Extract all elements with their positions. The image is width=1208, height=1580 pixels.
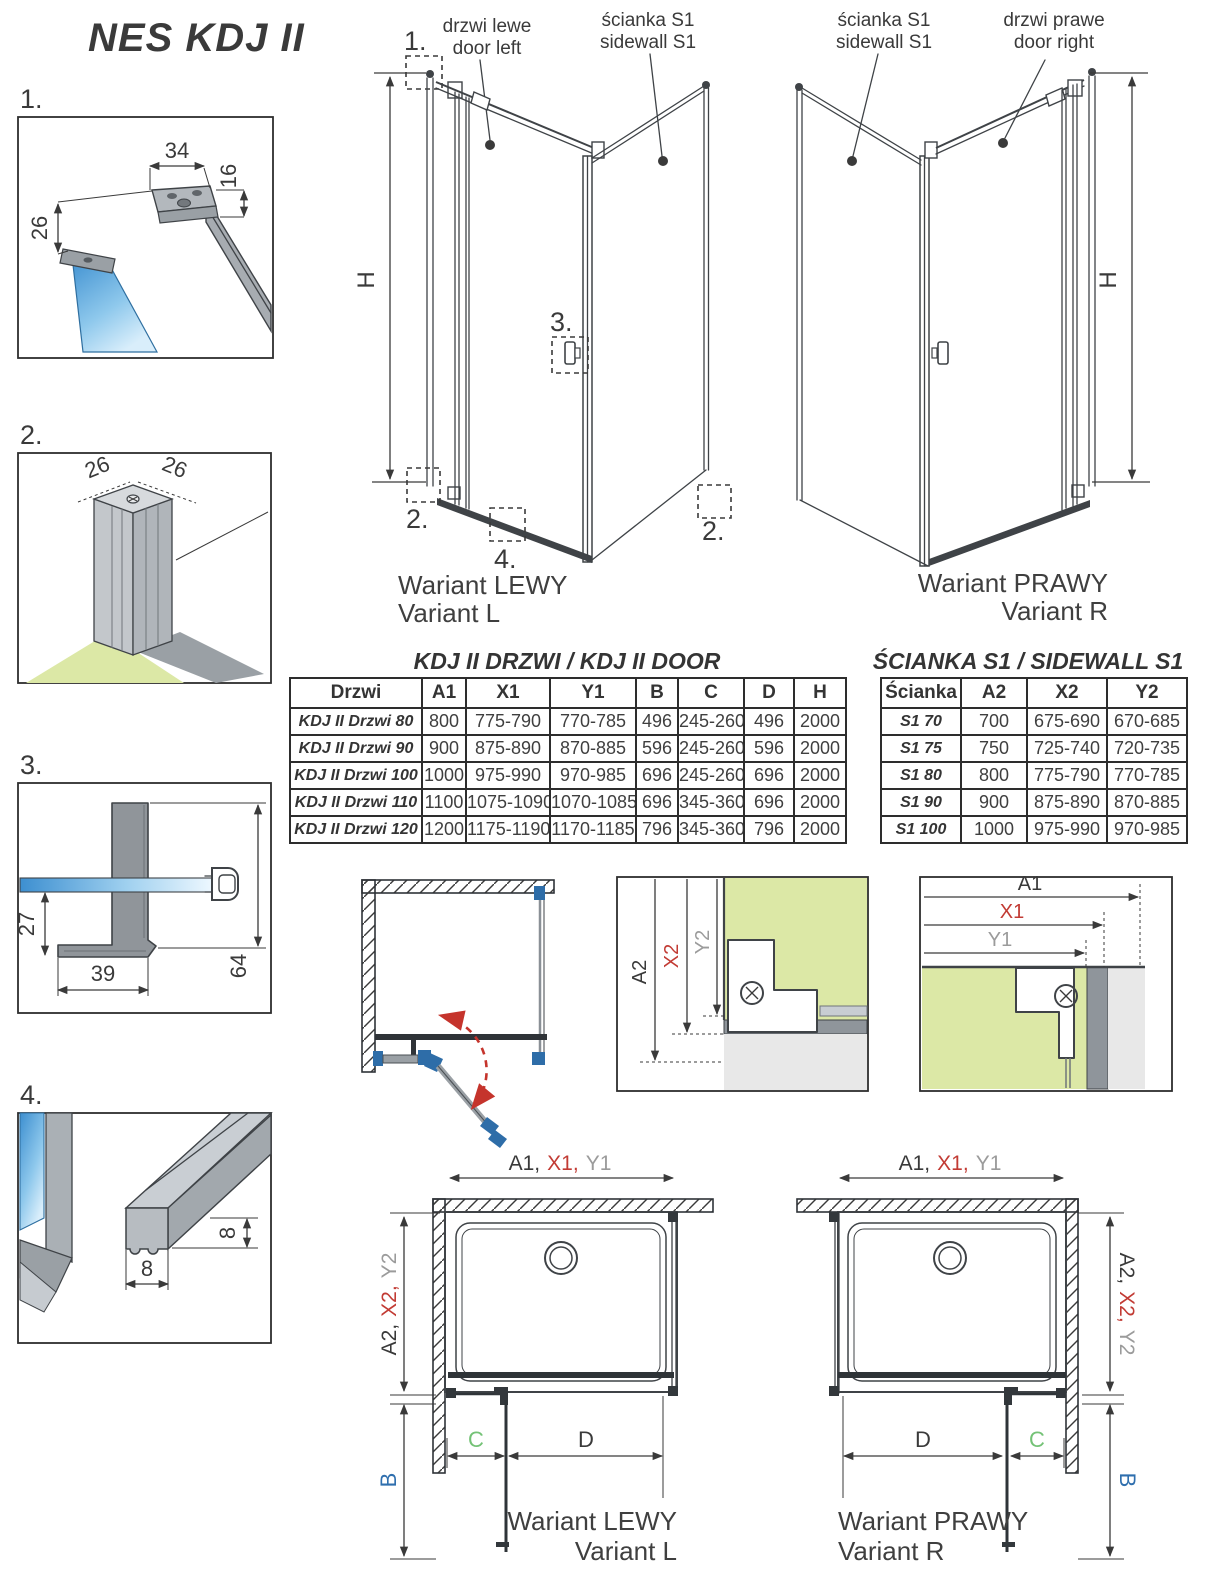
- leader-dot: [998, 138, 1008, 148]
- leader-dot: [847, 156, 857, 166]
- dim-c: C: [468, 1427, 484, 1452]
- dim-8-height: 8: [215, 1227, 240, 1239]
- marker-2-box: [698, 485, 731, 518]
- table-row: S1 75750725-740720-735: [881, 735, 1187, 762]
- cell: 696: [744, 789, 794, 816]
- sidewall-label-en: sidewall S1: [836, 32, 932, 53]
- shower-tray: [838, 1212, 1066, 1392]
- leader-dot: [658, 156, 668, 166]
- cell: 1000: [422, 762, 466, 789]
- hinge-block: [1072, 485, 1084, 497]
- table-row: KDJ II Drzwi 90900875-890870-885596245-2…: [290, 735, 846, 762]
- door-handle: [938, 342, 948, 364]
- cell: 2000: [794, 735, 846, 762]
- door-left-label-pl: drzwi lewe: [443, 16, 532, 37]
- door-rail: [448, 1372, 674, 1378]
- glass-connector: [532, 1052, 545, 1065]
- cell: KDJ II Drzwi 110: [290, 789, 422, 816]
- dim-b: B: [1115, 1473, 1140, 1488]
- detail-4-threshold-profile: 4. 8 8: [18, 1080, 271, 1343]
- cell: 770-785: [1107, 762, 1187, 789]
- dim-d: D: [578, 1427, 594, 1452]
- marker-3: 3.: [550, 307, 573, 337]
- mount-detail-sidewall: A2 X2 Y2: [617, 877, 868, 1091]
- corner-connector: [925, 142, 937, 158]
- sidewall-table-title: ŚCIANKA S1 / SIDEWALL S1: [866, 648, 1190, 675]
- dim-x2: X2: [661, 944, 683, 968]
- sidewall-table: Ścianka A2 X2 Y2 S1 70700675-690670-685 …: [880, 677, 1188, 844]
- cell: 775-790: [466, 708, 550, 735]
- table-header-row: Drzwi A1 X1 Y1 B C D H: [290, 678, 846, 708]
- profile-left-face: [94, 499, 133, 655]
- col-header-x2: X2: [1027, 678, 1107, 708]
- cell: S1 75: [881, 735, 961, 762]
- height-label: H: [353, 271, 380, 288]
- hinge-wall-block: [1056, 1388, 1066, 1398]
- plan-side-dims: A2,X2,Y2: [1115, 1253, 1138, 1356]
- sidewall-label-pl: ścianka S1: [602, 10, 695, 31]
- cell: 496: [744, 708, 794, 735]
- cell: 970-985: [1107, 816, 1187, 843]
- cell: 1000: [961, 816, 1027, 843]
- cell: 245-260: [678, 708, 744, 735]
- dim-a2: A2: [629, 960, 651, 984]
- col-header-c: C: [678, 678, 744, 708]
- dim-c: C: [1029, 1427, 1045, 1452]
- dim-16: 16: [216, 164, 241, 188]
- cell: 770-785: [550, 708, 636, 735]
- col-header-b: B: [636, 678, 678, 708]
- wall-left: [362, 880, 375, 1072]
- cell: KDJ II Drzwi 90: [290, 735, 422, 762]
- variant-left-drawing: drzwi lewe door left ścianka S1 sidewall…: [353, 10, 731, 628]
- door-rail-section: [820, 1006, 867, 1016]
- door-foot: [496, 1542, 509, 1547]
- cell: 696: [636, 762, 678, 789]
- glass-panel: [20, 1113, 44, 1230]
- cell: 975-990: [1027, 816, 1107, 843]
- sidewall-label-en: sidewall S1: [600, 32, 696, 53]
- cell: 900: [422, 735, 466, 762]
- marker-2: 2.: [406, 504, 429, 534]
- cell: 2000: [794, 762, 846, 789]
- threshold-bar: [929, 500, 1090, 566]
- door-rail: [375, 1034, 547, 1040]
- detail-1-frame: [18, 117, 273, 358]
- table-row: KDJ II Drzwi 80800775-790770-785496245-2…: [290, 708, 846, 735]
- dim-y1: Y1: [988, 929, 1012, 951]
- cell: 800: [422, 708, 466, 735]
- cell: 900: [961, 789, 1027, 816]
- screw-icon: [178, 199, 191, 207]
- profile-strip: [1087, 967, 1108, 1089]
- variant-right-caption-en: Variant R: [1002, 596, 1108, 626]
- dim-34: 34: [165, 138, 189, 163]
- plan-left-caption-en: Variant L: [575, 1536, 677, 1566]
- col-header-y1: Y1: [550, 678, 636, 708]
- dim-26: 26: [27, 216, 52, 240]
- shower-tray: [445, 1212, 677, 1392]
- cell: S1 80: [881, 762, 961, 789]
- wall-left: [433, 1199, 445, 1473]
- cell: KDJ II Drzwi 100: [290, 762, 422, 789]
- cell: 2000: [794, 816, 846, 843]
- cell: 750: [961, 735, 1027, 762]
- glass-connector: [534, 886, 545, 900]
- corner-connector: [592, 142, 604, 158]
- plan-top-dims: A1,X1,Y1: [509, 1152, 612, 1175]
- door-right-label-pl: drzwi prawe: [1003, 10, 1104, 31]
- swing-arc-arrow: [443, 1016, 487, 1106]
- hinge-block: [1068, 80, 1082, 96]
- detail-2-number: 2.: [20, 420, 43, 450]
- cell: 875-890: [1027, 789, 1107, 816]
- seal-profile: [46, 1113, 72, 1262]
- screw-icon: [192, 190, 202, 196]
- dim-b: B: [376, 1473, 401, 1488]
- detail-3-wall-bracket-section: 3. 27 39 64: [14, 750, 271, 1013]
- dim-x1: X1: [1000, 901, 1024, 923]
- cell: 2000: [794, 708, 846, 735]
- cell: 796: [636, 816, 678, 843]
- detail-3-number: 3.: [20, 750, 43, 780]
- cell: 675-690: [1027, 708, 1107, 735]
- table-row: S1 90900875-890870-885: [881, 789, 1187, 816]
- table-row: KDJ II Drzwi 12012001175-11901170-118579…: [290, 816, 846, 843]
- col-header-x1: X1: [466, 678, 550, 708]
- table-row: S1 70700675-690670-685: [881, 708, 1187, 735]
- dim-27: 27: [14, 912, 39, 936]
- cell: 975-990: [466, 762, 550, 789]
- plan-right-caption-en: Variant R: [838, 1536, 944, 1566]
- wall-top: [797, 1199, 1078, 1212]
- dim-d: D: [915, 1427, 931, 1452]
- col-header-d: D: [744, 678, 794, 708]
- door-foot: [1002, 1542, 1015, 1547]
- variant-left-caption-pl: Wariant LEWY: [398, 570, 568, 600]
- plan-view-right: A1,X1,Y1 A2,X2,Y2 B D C Wariant PRAWY Va…: [797, 1152, 1140, 1566]
- door-rail: [838, 1372, 1066, 1378]
- sidewall-label-pl: ścianka S1: [838, 10, 931, 31]
- marker-2-box: [407, 468, 440, 502]
- detail-1-top-bracket: 1. 34 16 26: [18, 84, 273, 358]
- door-table-title: KDJ II DRZWI / KDJ II DOOR: [289, 648, 845, 675]
- door-swing-schematic: [362, 880, 554, 1148]
- cell: 970-985: [550, 762, 636, 789]
- glass-connector: [668, 1386, 678, 1396]
- glass-connector: [829, 1386, 839, 1396]
- cell: 720-735: [1107, 735, 1187, 762]
- col-header-h: H: [794, 678, 846, 708]
- table-header-row: Ścianka A2 X2 Y2: [881, 678, 1187, 708]
- detail-2-corner-profile: 2. 26 26: [18, 420, 271, 683]
- cell: 1075-1090: [466, 789, 550, 816]
- screw-icon: [84, 257, 93, 262]
- cell: 2000: [794, 789, 846, 816]
- variant-right-caption-pl: Wariant PRAWY: [918, 568, 1108, 598]
- plan-side-dims: A2,X2,Y2: [378, 1253, 401, 1356]
- hinge-block: [448, 487, 460, 499]
- col-header-scianka: Ścianka: [881, 678, 961, 708]
- cell: 1175-1190: [466, 816, 550, 843]
- table-row: KDJ II Drzwi 11011001075-10901070-108569…: [290, 789, 846, 816]
- hinge-arm: [383, 1055, 418, 1063]
- profile-right-face: [133, 499, 172, 655]
- plan-right-caption-pl: Wariant PRAWY: [838, 1506, 1028, 1536]
- floor-strip: [724, 1034, 867, 1090]
- cell: 696: [636, 789, 678, 816]
- cell: 245-260: [678, 762, 744, 789]
- glass-connector: [829, 1212, 839, 1222]
- plan-top-dims: A1,X1,Y1: [899, 1152, 1002, 1175]
- table-row: KDJ II Drzwi 1001000975-990970-985696245…: [290, 762, 846, 789]
- cell: 1070-1085: [550, 789, 636, 816]
- cell: 870-885: [550, 735, 636, 762]
- cell: 345-360: [678, 789, 744, 816]
- cell: KDJ II Drzwi 120: [290, 816, 422, 843]
- plan-left-caption-pl: Wariant LEWY: [507, 1506, 677, 1536]
- wall-right: [1066, 1199, 1078, 1473]
- cell: S1 70: [881, 708, 961, 735]
- cell: 875-890: [466, 735, 550, 762]
- height-label: H: [1095, 271, 1122, 288]
- detail-1-number: 1.: [20, 84, 43, 114]
- dim-64: 64: [226, 954, 251, 978]
- cell: 1200: [422, 816, 466, 843]
- detail-4-number: 4.: [20, 1080, 43, 1110]
- cell: 496: [636, 708, 678, 735]
- marker-1: 1.: [404, 26, 427, 56]
- cell: 345-360: [678, 816, 744, 843]
- table-row: S1 80800775-790770-785: [881, 762, 1187, 789]
- table-row: S1 1001000975-990970-985: [881, 816, 1187, 843]
- handle-knob: [212, 868, 238, 900]
- cell: 670-685: [1107, 708, 1187, 735]
- door-left-label-en: door left: [453, 38, 522, 59]
- cell: S1 100: [881, 816, 961, 843]
- col-header-drzwi: Drzwi: [290, 678, 422, 708]
- cell: 696: [744, 762, 794, 789]
- bar-clamp: [471, 92, 490, 110]
- dim-y2: Y2: [692, 930, 714, 954]
- plan-view-left: A1,X1,Y1 A2,X2,Y2 B C D Wariant LEWY Var…: [376, 1152, 713, 1566]
- col-header-a2: A2: [961, 678, 1027, 708]
- door-table: Drzwi A1 X1 Y1 B C D H KDJ II Drzwi 8080…: [289, 677, 847, 844]
- hinge-wall-block: [373, 1051, 383, 1066]
- dim-8-width: 8: [141, 1256, 153, 1281]
- hinge-wall-block: [446, 1388, 456, 1398]
- cell: 596: [744, 735, 794, 762]
- cell: 700: [961, 708, 1027, 735]
- door-right-label-en: door right: [1014, 32, 1095, 53]
- dim-39: 39: [91, 961, 115, 986]
- dim-a1: A1: [1018, 873, 1042, 895]
- cell: 596: [636, 735, 678, 762]
- cell: 725-740: [1027, 735, 1107, 762]
- variant-left-caption-en: Variant L: [398, 598, 500, 628]
- marker-2: 2.: [702, 516, 725, 546]
- cell: 870-885: [1107, 789, 1187, 816]
- cell: KDJ II Drzwi 80: [290, 708, 422, 735]
- mount-detail-door: A1 X1 Y1: [920, 873, 1172, 1091]
- cell: 1100: [422, 789, 466, 816]
- screw-icon: [167, 193, 177, 199]
- wall-top: [433, 1199, 713, 1212]
- col-header-a1: A1: [422, 678, 466, 708]
- leader-dot: [485, 140, 495, 150]
- col-header-y2: Y2: [1107, 678, 1187, 708]
- glass-connector: [668, 1212, 678, 1222]
- floor-strip: [1108, 967, 1145, 1089]
- threshold-section: [126, 1208, 168, 1254]
- cell: S1 90: [881, 789, 961, 816]
- variant-right-drawing: ścianka S1 sidewall S1 drzwi prawe door …: [795, 10, 1150, 626]
- cell: 245-260: [678, 735, 744, 762]
- cell: 1170-1185: [550, 816, 636, 843]
- wall-top: [362, 880, 554, 893]
- cell: 775-790: [1027, 762, 1107, 789]
- cell: 796: [744, 816, 794, 843]
- cell: 800: [961, 762, 1027, 789]
- glass-panel: [20, 878, 213, 892]
- door-handle: [565, 342, 575, 364]
